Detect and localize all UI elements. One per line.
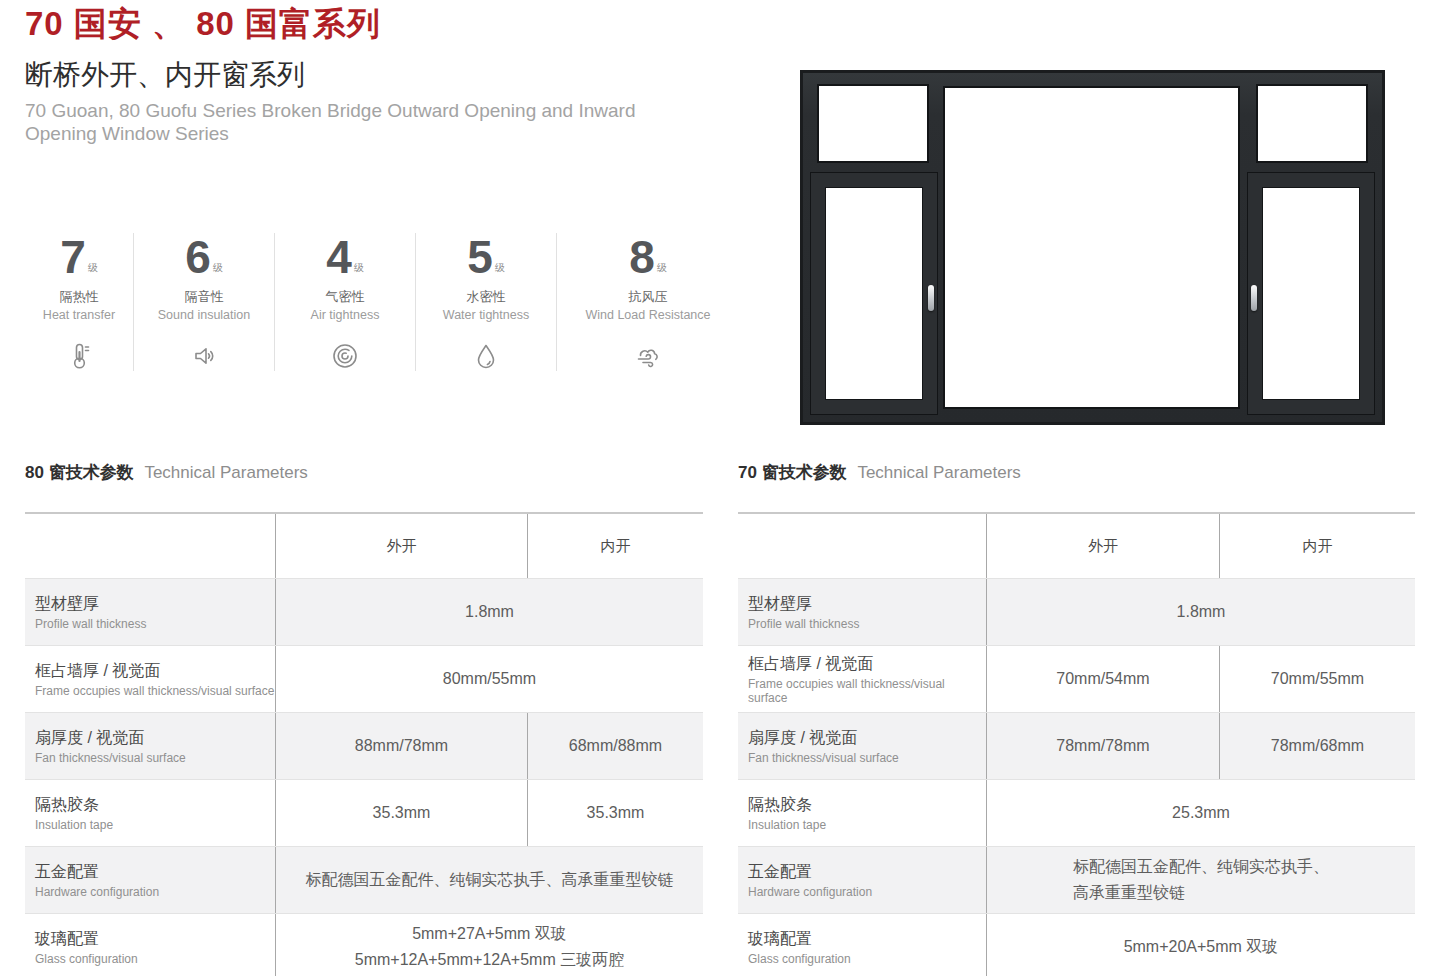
table-row: 玻璃配置 Glass configuration 5mm+20A+5mm 双玻 [738, 913, 1415, 976]
row-label-cn: 框占墙厚 / 视觉面 [748, 654, 873, 674]
spiral-icon [330, 340, 360, 371]
table-row: 型材壁厚 Profile wall thickness 1.8mm [25, 578, 703, 645]
table-row: 扇厚度 / 视觉面 Fan thickness/visual surface 7… [738, 712, 1415, 779]
row-label-cn: 隔热胶条 [35, 795, 99, 815]
wind-icon [632, 340, 664, 371]
cell-value-outward: 35.3mm [373, 800, 431, 826]
rating-label-en: Heat transfer [43, 308, 115, 322]
row-label-en: Insulation tape [35, 818, 113, 832]
rating-label-en: Air tightness [311, 308, 380, 322]
cell-value: 5mm+27A+5mm 双玻 5mm+12A+5mm+12A+5mm 三玻两腔 [355, 921, 624, 973]
rating-unit: 级 [354, 261, 364, 275]
droplet-icon [471, 340, 501, 371]
table-row: 五金配置 Hardware configuration 标配德国五金配件、纯铜实… [25, 846, 703, 913]
table-80: 外开 内开 型材壁厚 Profile wall thickness 1.8mm … [25, 512, 703, 976]
window-pane-center [943, 86, 1240, 409]
row-label-en: Frame occupies wall thickness/visual sur… [35, 684, 274, 698]
cell-value: 标配德国五金配件、纯铜实芯执手、 高承重重型铰链 [1073, 854, 1329, 906]
cell-value-inward: 78mm/68mm [1271, 733, 1364, 759]
window-handle-left [928, 285, 934, 311]
cell-value-outward: 78mm/78mm [1056, 733, 1149, 759]
rating-unit: 级 [657, 261, 667, 275]
rating-label-en: Water tightness [443, 308, 529, 322]
table-row: 框占墙厚 / 视觉面 Frame occupies wall thickness… [738, 645, 1415, 712]
table-title-80-cn: 80 窗技术参数 [25, 463, 134, 482]
table-title-70-cn: 70 窗技术参数 [738, 463, 847, 482]
rating-water-tightness: 5 级 水密性 Water tightness [415, 233, 556, 371]
row-label-en: Fan thickness/visual surface [748, 751, 899, 765]
window-pane-top-left [817, 84, 929, 163]
row-label-en: Frame occupies wall thickness/visual sur… [748, 677, 986, 705]
row-label-en: Glass configuration [35, 952, 138, 966]
rating-value: 8 [629, 235, 655, 279]
rating-value: 4 [326, 235, 352, 279]
table-title-80: 80 窗技术参数 Technical Parameters [25, 461, 308, 484]
window-pane-casement-left [825, 187, 923, 400]
page-subtitle: 断桥外开、内开窗系列 [25, 56, 305, 94]
brochure-page: 70 国安 、 80 国富系列 断桥外开、内开窗系列 70 Guoan, 80 … [0, 0, 1442, 976]
table-row: 五金配置 Hardware configuration 标配德国五金配件、纯铜实… [738, 846, 1415, 913]
cell-value-inward: 68mm/88mm [569, 733, 662, 759]
table-row: 型材壁厚 Profile wall thickness 1.8mm [738, 578, 1415, 645]
cell-value-inward: 35.3mm [587, 800, 645, 826]
cell-value-outward: 88mm/78mm [355, 733, 448, 759]
column-header-inward: 内开 [1219, 514, 1415, 578]
cell-value: 1.8mm [465, 599, 514, 625]
table-row: 扇厚度 / 视觉面 Fan thickness/visual surface 8… [25, 712, 703, 779]
rating-sound-insulation: 6 级 隔音性 Sound insulation [133, 233, 274, 371]
cell-value: 标配德国五金配件、纯铜实芯执手、高承重重型铰链 [306, 867, 674, 893]
rating-label-cn: 隔音性 [185, 288, 224, 306]
window-pane-casement-right [1262, 187, 1360, 400]
table-row: 玻璃配置 Glass configuration 5mm+27A+5mm 双玻 … [25, 913, 703, 976]
row-label-cn: 五金配置 [35, 862, 99, 882]
rating-unit: 级 [495, 261, 505, 275]
table-row: 隔热胶条 Insulation tape 25.3mm [738, 779, 1415, 846]
page-title: 70 国安 、 80 国富系列 [25, 2, 381, 47]
table-row: 隔热胶条 Insulation tape 35.3mm 35.3mm [25, 779, 703, 846]
window-handle-right [1251, 285, 1257, 311]
page-subtitle-en: 70 Guoan, 80 Guofu Series Broken Bridge … [25, 99, 685, 145]
table-70-header-row: 外开 内开 [738, 512, 1415, 578]
row-label-en: Insulation tape [748, 818, 826, 832]
row-label-cn: 隔热胶条 [748, 795, 812, 815]
table-80-header-row: 外开 内开 [25, 512, 703, 578]
window-casement-right [1247, 172, 1375, 415]
row-label-cn: 玻璃配置 [35, 929, 99, 949]
row-label-cn: 扇厚度 / 视觉面 [35, 728, 144, 748]
row-label-cn: 玻璃配置 [748, 929, 812, 949]
rating-wind-load: 8 级 抗风压 Wind Load Resistance [556, 233, 739, 371]
window-pane-top-right [1256, 84, 1368, 163]
table-title-80-en: Technical Parameters [144, 463, 307, 482]
rating-value: 5 [467, 235, 493, 279]
rating-label-cn: 抗风压 [629, 288, 668, 306]
thermometer-icon [64, 340, 94, 371]
column-header-inward: 内开 [527, 514, 703, 578]
cell-value: 5mm+20A+5mm 双玻 [1124, 934, 1279, 960]
table-title-70: 70 窗技术参数 Technical Parameters [738, 461, 1021, 484]
row-label-en: Hardware configuration [35, 885, 159, 899]
rating-label-en: Sound insulation [158, 308, 250, 322]
table-70: 外开 内开 型材壁厚 Profile wall thickness 1.8mm … [738, 512, 1415, 976]
rating-label-cn: 气密性 [326, 288, 365, 306]
row-label-cn: 五金配置 [748, 862, 812, 882]
rating-label-cn: 隔热性 [60, 288, 99, 306]
table-row: 框占墙厚 / 视觉面 Frame occupies wall thickness… [25, 645, 703, 712]
cell-value-inward: 70mm/55mm [1271, 666, 1364, 692]
cell-value-outward: 70mm/54mm [1056, 666, 1149, 692]
performance-ratings-bar: 7 级 隔热性 Heat transfer 6 级 隔音性 Sou [25, 233, 739, 371]
rating-air-tightness: 4 级 气密性 Air tightness [274, 233, 415, 371]
row-label-cn: 型材壁厚 [35, 594, 99, 614]
speaker-icon [189, 340, 219, 371]
row-label-cn: 框占墙厚 / 视觉面 [35, 661, 160, 681]
row-label-cn: 扇厚度 / 视觉面 [748, 728, 857, 748]
column-header-outward: 外开 [986, 514, 1219, 578]
row-label-en: Hardware configuration [748, 885, 872, 899]
row-label-cn: 型材壁厚 [748, 594, 812, 614]
rating-heat-transfer: 7 级 隔热性 Heat transfer [25, 233, 133, 371]
column-header-outward: 外开 [275, 514, 527, 578]
cell-value: 1.8mm [1177, 599, 1226, 625]
table-title-70-en: Technical Parameters [857, 463, 1020, 482]
rating-unit: 级 [88, 261, 98, 275]
window-illustration [800, 70, 1385, 425]
rating-label-en: Wind Load Resistance [585, 308, 710, 322]
row-label-en: Profile wall thickness [35, 617, 146, 631]
row-label-en: Profile wall thickness [748, 617, 859, 631]
row-label-en: Fan thickness/visual surface [35, 751, 186, 765]
row-label-en: Glass configuration [748, 952, 851, 966]
cell-value: 80mm/55mm [443, 666, 536, 692]
window-casement-left [810, 172, 938, 415]
rating-label-cn: 水密性 [467, 288, 506, 306]
rating-value: 7 [60, 235, 86, 279]
rating-unit: 级 [213, 261, 223, 275]
rating-value: 6 [185, 235, 211, 279]
cell-value: 25.3mm [1172, 800, 1230, 826]
